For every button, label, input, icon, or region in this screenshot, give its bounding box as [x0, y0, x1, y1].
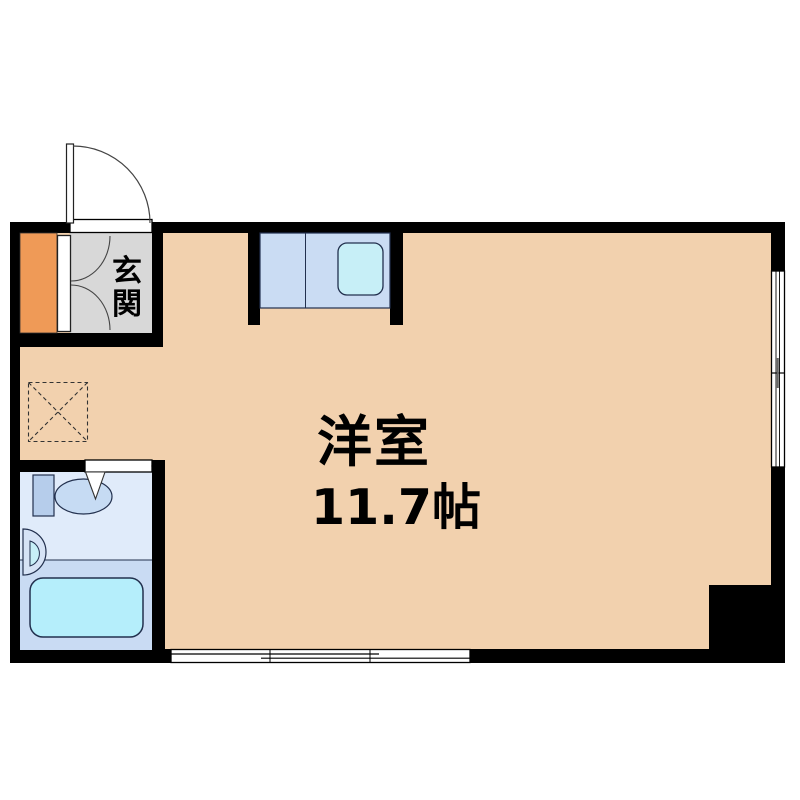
main-room-name-label: 洋室: [317, 410, 431, 474]
shoe-closet-doors-panel: [58, 236, 71, 332]
sliding-window-bottom: [171, 650, 470, 663]
sliding-window-right: [772, 271, 785, 467]
wall-kitchen-stub-left: [248, 233, 260, 325]
entrance-door-swing-arc: [73, 146, 150, 223]
kitchen-unit: [260, 233, 390, 308]
bathroom-door-opening: [85, 460, 152, 472]
toilet-bowl: [55, 479, 112, 514]
floor-plan-drawing: 玄 関: [0, 0, 800, 800]
wall-kitchen-stub-right: [390, 233, 403, 325]
wall-left: [10, 222, 20, 663]
window-bottom-frame: [171, 650, 470, 663]
toilet-tank: [33, 475, 54, 516]
genkan-label-char-2: 関: [112, 287, 142, 322]
wall-corner-block: [709, 585, 785, 663]
main-room-area-label: 11.7帖: [311, 479, 481, 536]
genkan-label-char-1: 玄: [112, 254, 142, 289]
kitchen-sink: [338, 243, 383, 295]
entrance-area: 玄 関: [20, 144, 152, 333]
bathtub: [30, 578, 143, 637]
orange-closet-box: [20, 233, 57, 333]
wall-genkan-right: [152, 233, 163, 347]
wall-bathroom-top: [10, 460, 85, 472]
floor-plan-page: 玄 関: [0, 0, 800, 800]
wall-bathroom-right: [152, 460, 165, 650]
bathroom: [20, 460, 165, 650]
wall-top-main: [152, 222, 785, 233]
entrance-opening-sill: [70, 220, 152, 233]
wall-genkan-bottom: [10, 333, 163, 347]
entrance-door-leaf: [67, 144, 74, 223]
